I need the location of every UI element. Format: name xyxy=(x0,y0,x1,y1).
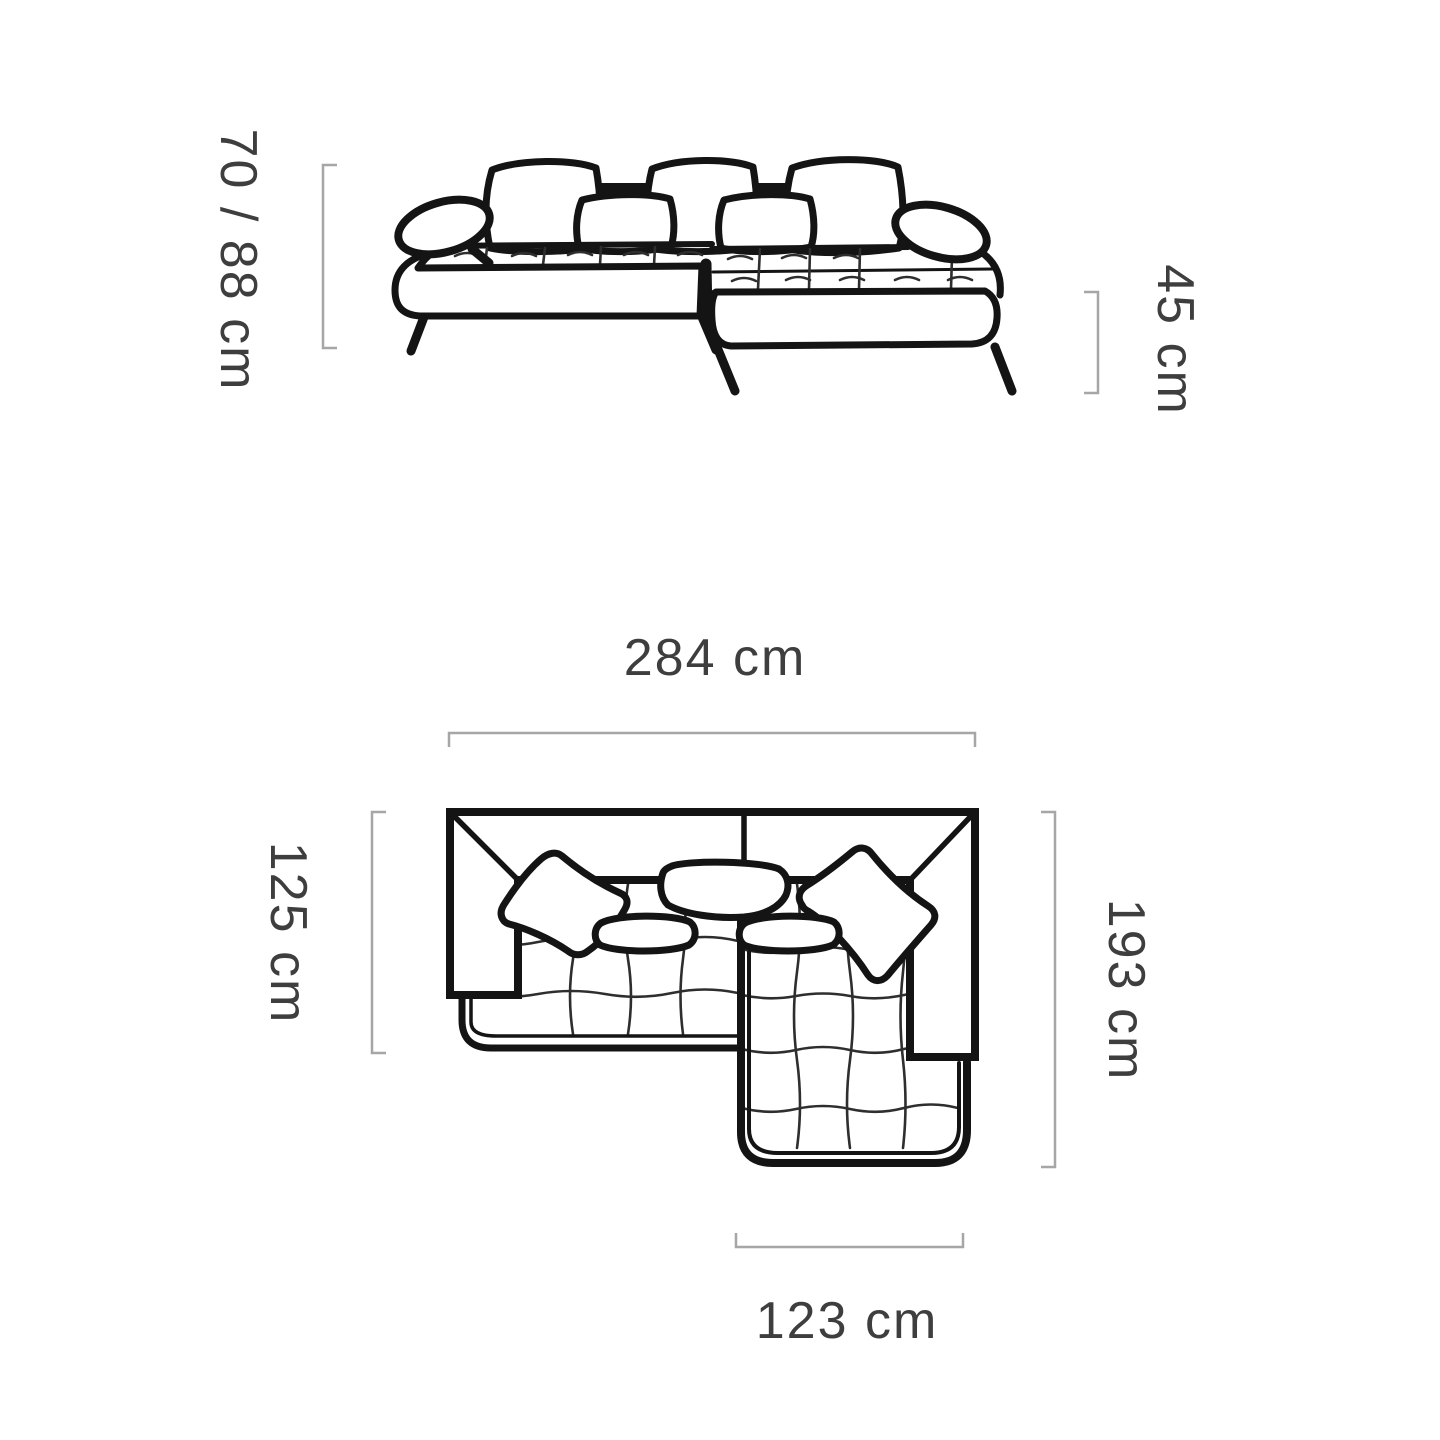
platform-chaise-topline xyxy=(714,290,984,292)
plan-bolster-right xyxy=(739,916,839,951)
bracket-front-height xyxy=(323,165,337,348)
bracket-left-depth xyxy=(372,812,386,1053)
dim-label-right-depth: 193 cm xyxy=(1096,899,1156,1082)
dim-label-overall-width: 284 cm xyxy=(624,628,807,688)
platform-chaise xyxy=(712,291,998,346)
bracket-overall-width xyxy=(449,733,975,747)
bracket-right-depth xyxy=(1041,812,1055,1167)
section-junction xyxy=(706,264,707,318)
sofa-top-view xyxy=(450,812,975,1163)
platform-left-topline xyxy=(418,266,702,268)
dim-label-seat-height: 45 cm xyxy=(1145,264,1205,416)
plan-bolster-left xyxy=(595,916,695,951)
seat-inner-line-left xyxy=(471,997,738,1036)
bracket-chaise-width xyxy=(736,1233,963,1247)
platform-left xyxy=(395,252,702,316)
bracket-seat-height xyxy=(1084,292,1098,393)
dim-label-left-depth: 125 cm xyxy=(258,842,318,1025)
dim-label-chaise-width: 123 cm xyxy=(756,1291,939,1351)
lumbar-pillow-right xyxy=(719,195,814,252)
seat-outline-left xyxy=(462,997,738,1048)
plan-pillow-center xyxy=(661,862,788,917)
sofa-front-view xyxy=(392,160,1012,391)
dim-label-front-height: 70 / 88 cm xyxy=(208,129,268,392)
armrest-right xyxy=(889,195,993,269)
dimension-diagram-page: 70 / 88 cm 45 cm 284 cm 125 cm 193 cm 12… xyxy=(0,0,1440,1440)
